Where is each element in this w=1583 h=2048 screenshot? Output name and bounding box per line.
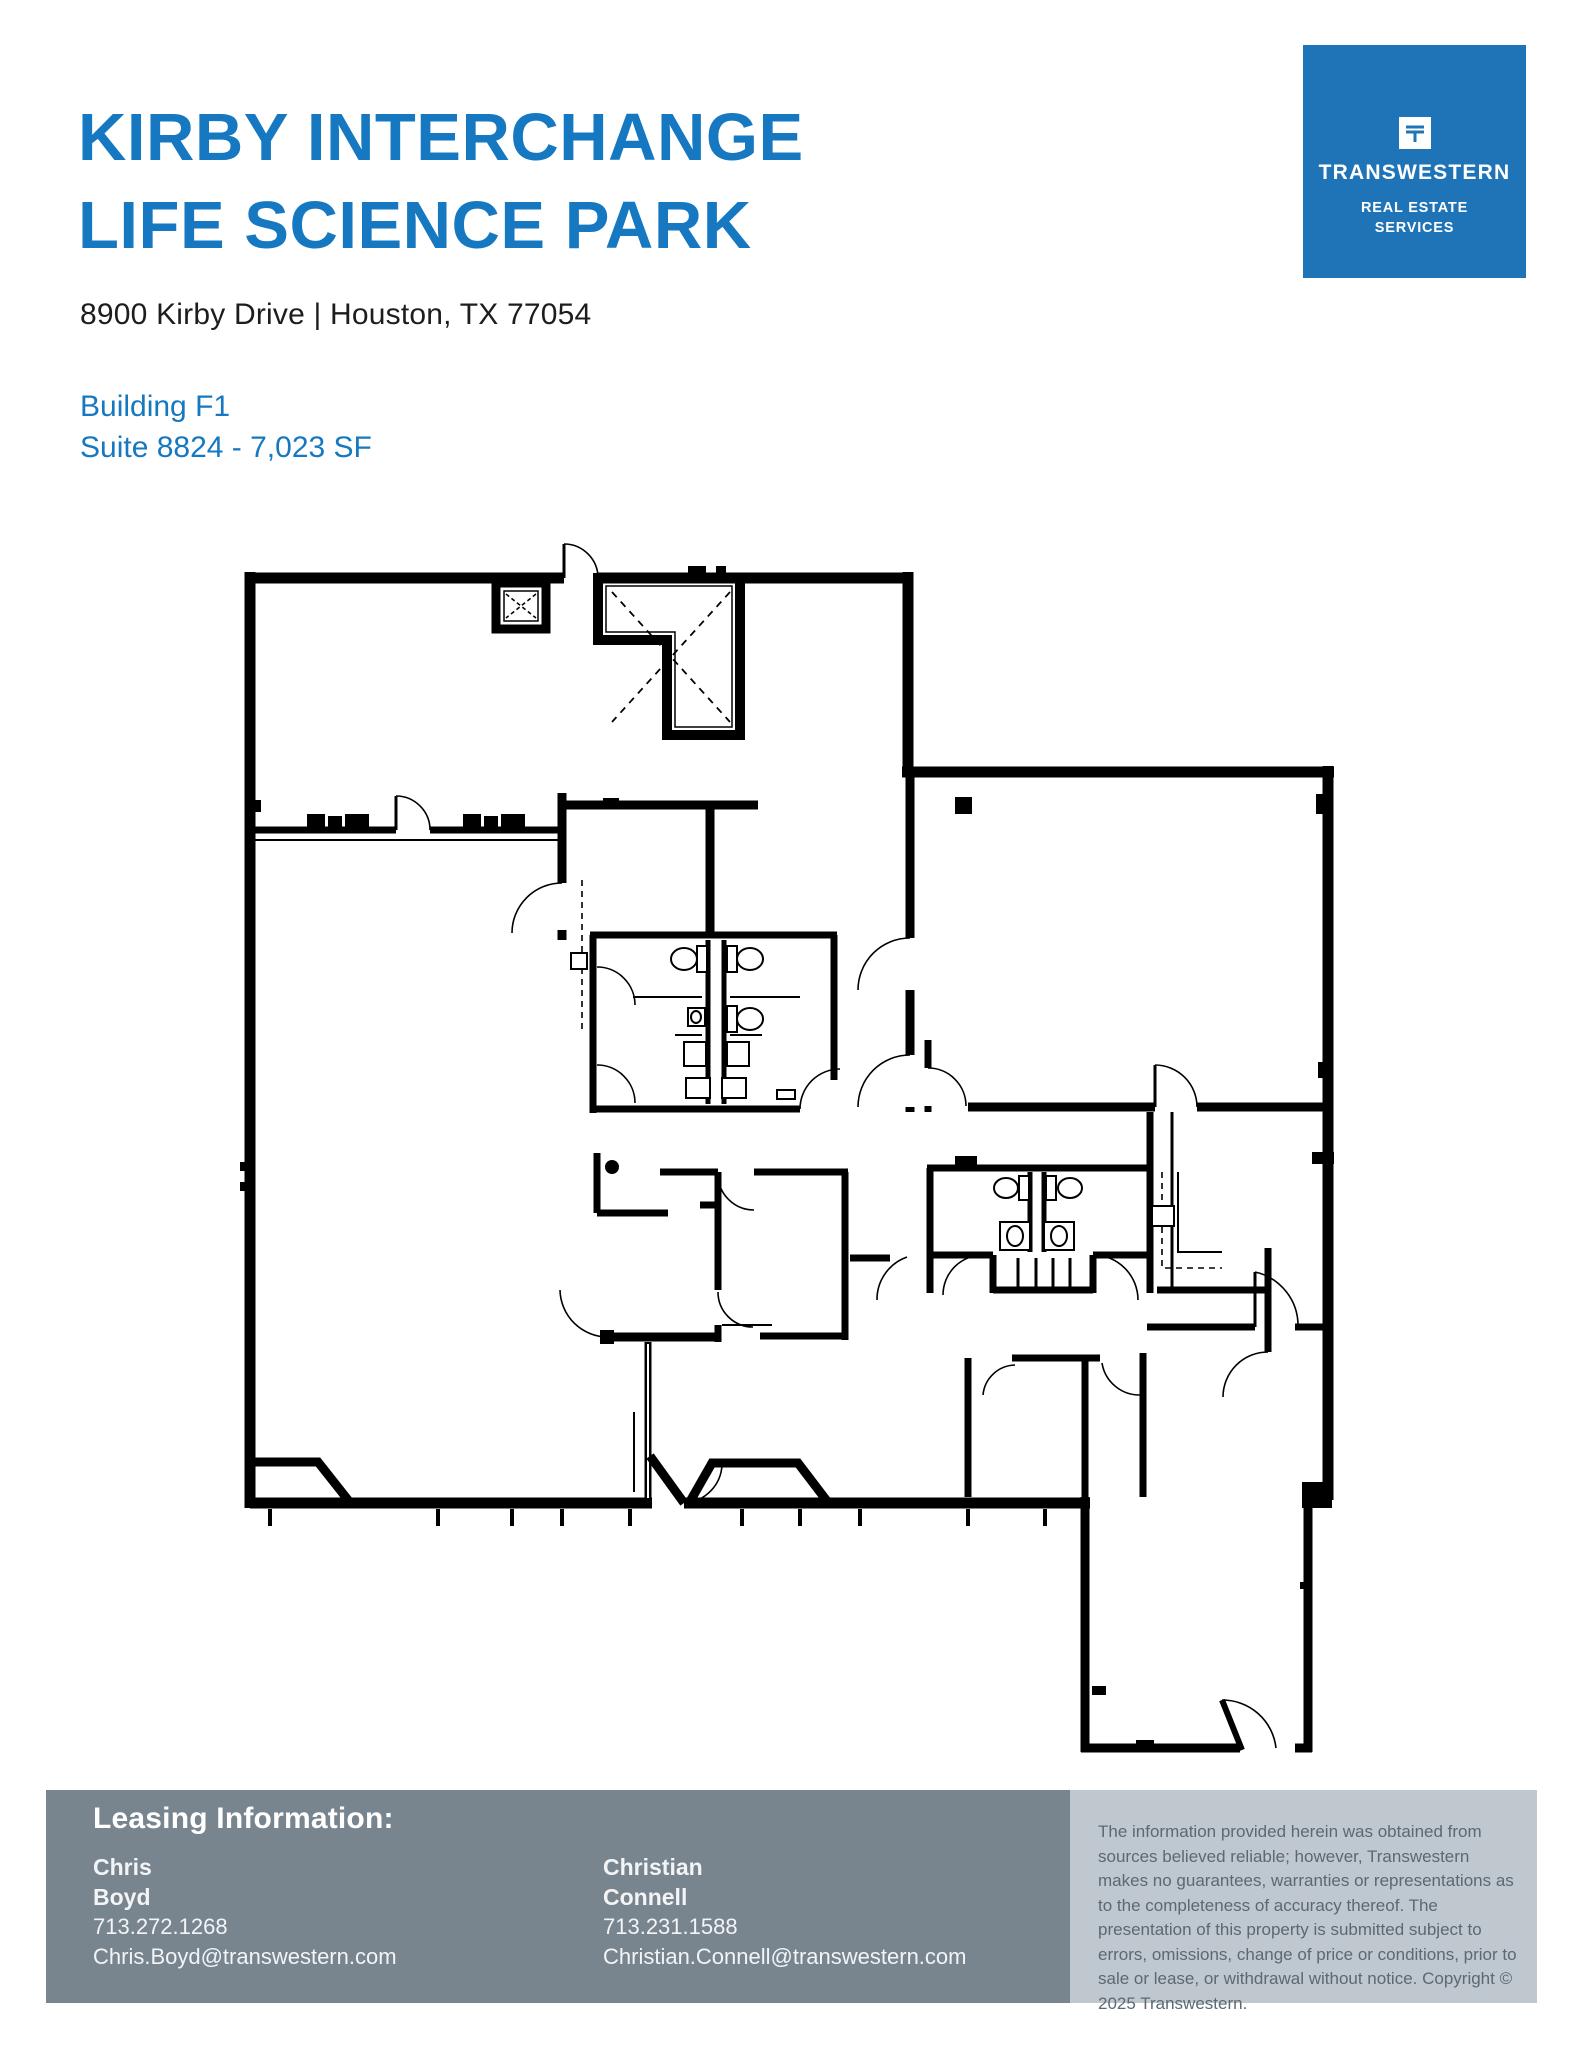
stair-shaft: [598, 578, 740, 735]
elevator-shaft: [496, 583, 546, 629]
contact-first-name: Christian: [603, 1852, 966, 1882]
columns-and-casework: [240, 566, 1334, 1750]
page-title: KIRBY INTERCHANGELIFE SCIENCE PARK: [78, 94, 804, 270]
disclaimer-panel: The information provided herein was obta…: [1070, 1790, 1537, 2003]
restroom-partitions: [708, 940, 1044, 1252]
building-label: Building F1: [80, 386, 372, 427]
contact-last-name: Boyd: [93, 1882, 397, 1912]
page-title-line1: KIRBY INTERCHANGE: [78, 100, 804, 175]
outer-walls: [250, 572, 1334, 1508]
logo-wordmark: TRANSWESTERN: [1319, 161, 1511, 185]
interior-walls: [252, 772, 1330, 1505]
floor-plan: [235, 425, 1350, 1770]
partition-walls: [252, 830, 1331, 1500]
transwestern-logo: TRANSWESTERN REAL ESTATESERVICES: [1303, 45, 1526, 278]
contact-email[interactable]: Christian.Connell@transwestern.com: [603, 1942, 966, 1972]
contact-first-name: Chris: [93, 1852, 397, 1882]
contact-last-name: Connell: [603, 1882, 966, 1912]
leasing-contact-2: Christian Connell 713.231.1588 Christian…: [603, 1852, 966, 1972]
contact-email[interactable]: Chris.Boyd@transwestern.com: [93, 1942, 397, 1972]
bottom-wall-hatch: [270, 1509, 1045, 1526]
flyer-page: KIRBY INTERCHANGELIFE SCIENCE PARK 8900 …: [0, 0, 1583, 2048]
door-arcs: [396, 544, 1298, 1748]
leasing-heading: Leasing Information:: [93, 1802, 394, 1836]
logo-tagline: REAL ESTATESERVICES: [1361, 198, 1468, 238]
property-address: 8900 Kirby Drive | Houston, TX 77054: [80, 298, 591, 332]
transwestern-t-icon: [1399, 117, 1431, 149]
restroom-fixtures: [571, 946, 1174, 1250]
leasing-footer: Leasing Information: Chris Boyd 713.272.…: [46, 1790, 1070, 2003]
disclaimer-text: The information provided herein was obta…: [1098, 1820, 1520, 2016]
page-title-line2: LIFE SCIENCE PARK: [78, 188, 752, 263]
leasing-contact-1: Chris Boyd 713.272.1268 Chris.Boyd@trans…: [93, 1852, 397, 1972]
contact-phone: 713.272.1268: [93, 1912, 397, 1942]
contact-phone: 713.231.1588: [603, 1912, 966, 1942]
door-leaves: [396, 544, 1255, 1750]
extension-walls: [1081, 1490, 1312, 1752]
